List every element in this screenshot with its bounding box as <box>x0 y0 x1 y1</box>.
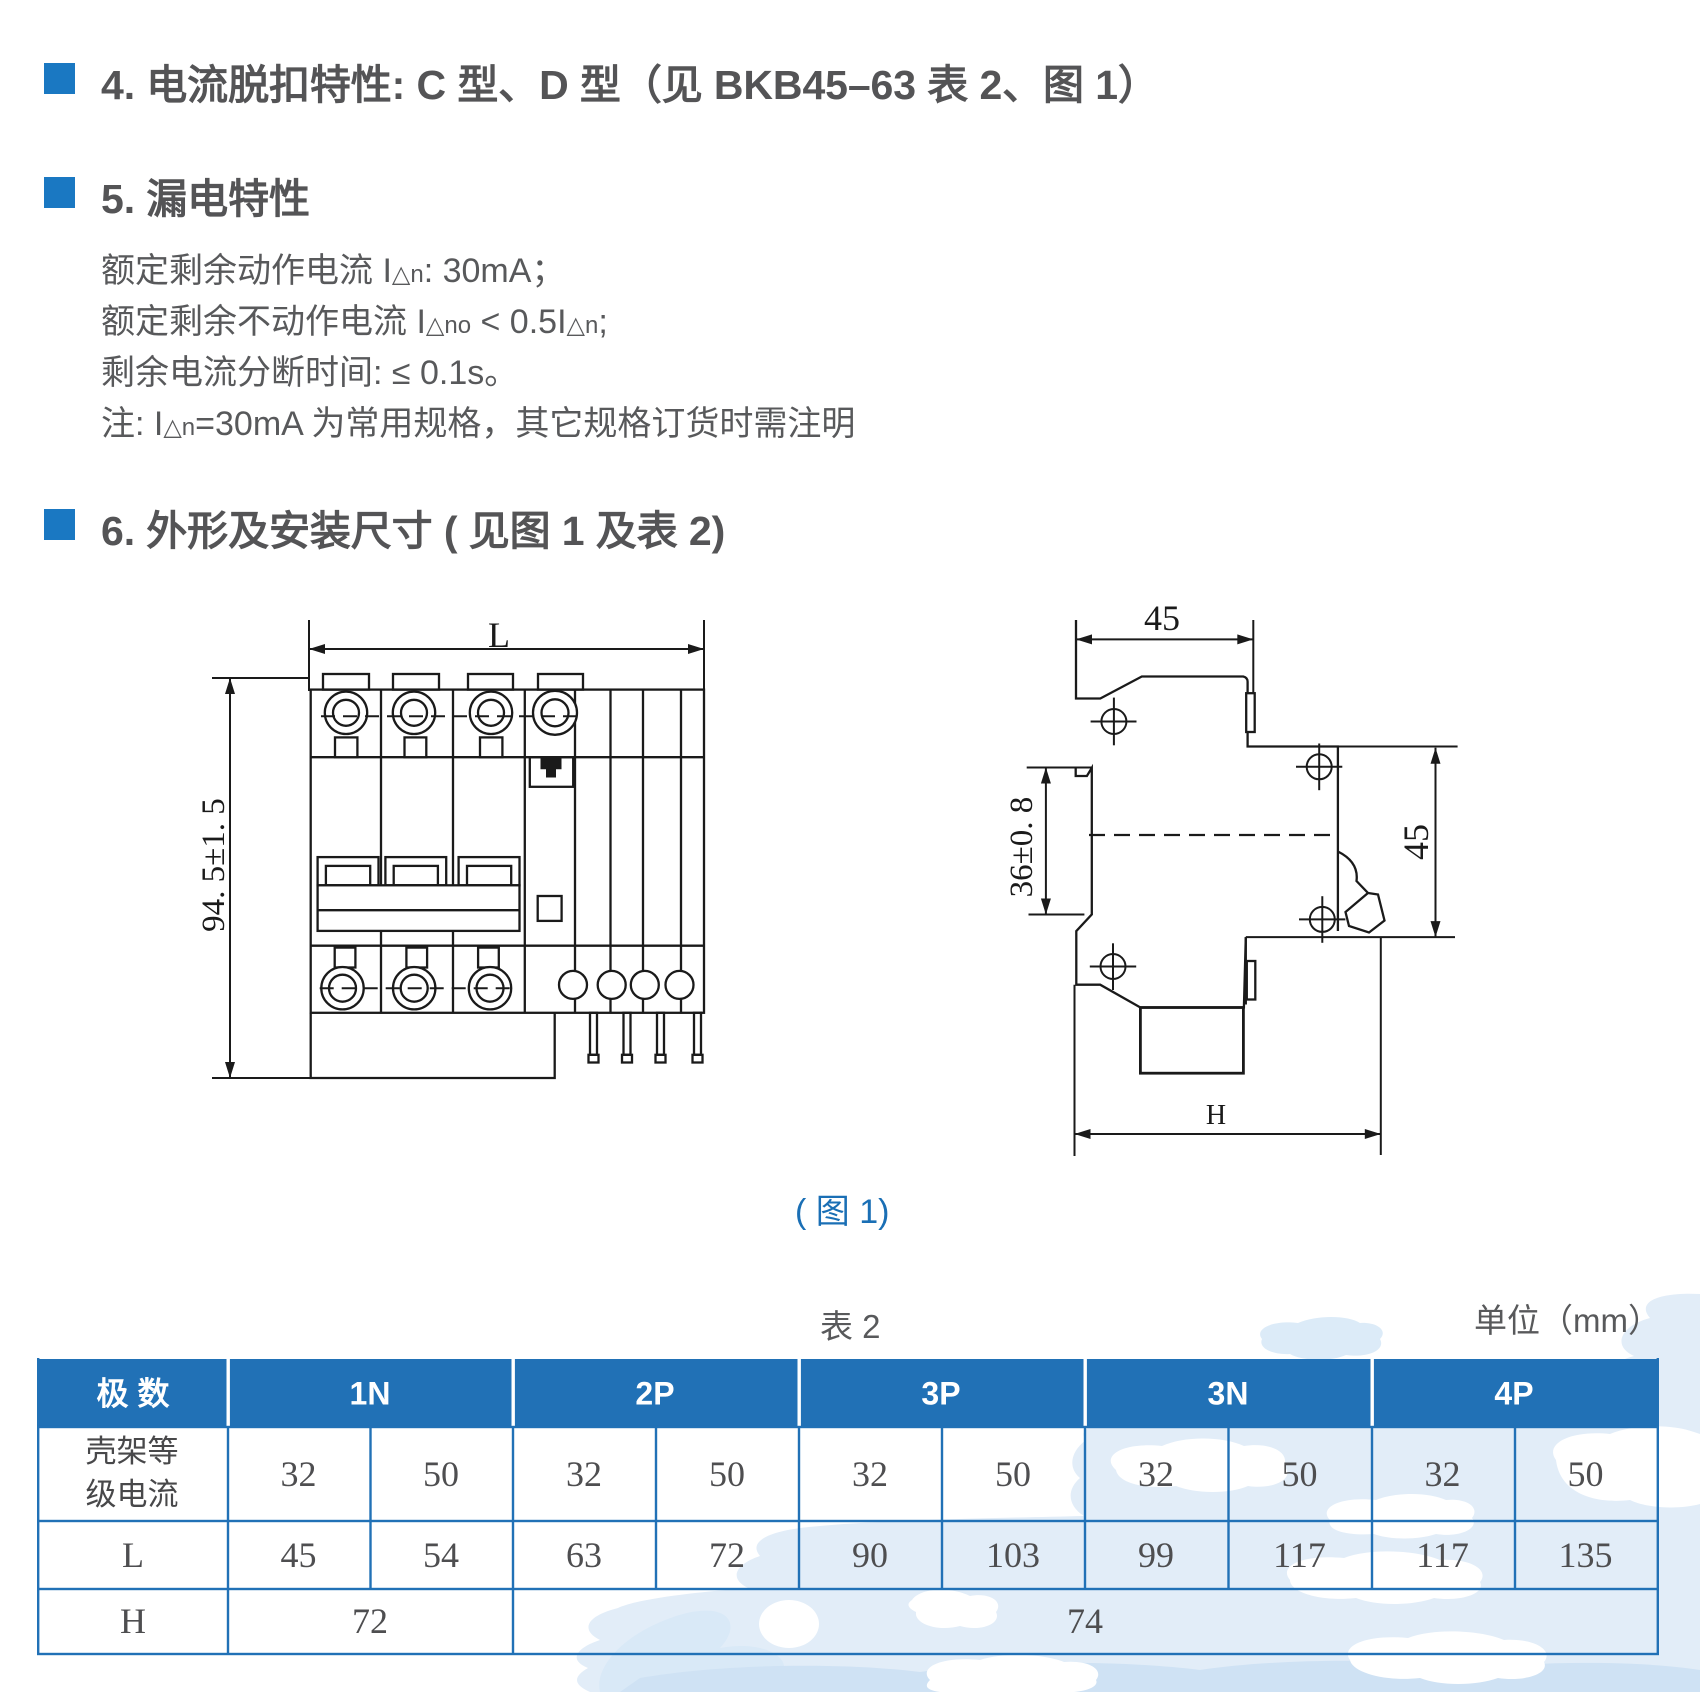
svg-text:H: H <box>120 1601 146 1641</box>
svg-text:50: 50 <box>1568 1454 1604 1494</box>
svg-text:32: 32 <box>281 1454 317 1494</box>
svg-text:2P: 2P <box>635 1376 674 1412</box>
svg-text:50: 50 <box>1282 1454 1318 1494</box>
svg-text:45: 45 <box>281 1535 317 1575</box>
svg-text:74: 74 <box>1067 1601 1103 1641</box>
svg-text:36±0. 8: 36±0. 8 <box>1004 797 1040 898</box>
svg-text:3N: 3N <box>1208 1376 1249 1412</box>
svg-text:117: 117 <box>1273 1535 1326 1575</box>
svg-text:32: 32 <box>1138 1454 1174 1494</box>
svg-text:32: 32 <box>852 1454 888 1494</box>
svg-text:103: 103 <box>986 1535 1040 1575</box>
svg-text:90: 90 <box>852 1535 888 1575</box>
svg-text:72: 72 <box>709 1535 745 1575</box>
svg-text:级电流: 级电流 <box>86 1477 179 1512</box>
svg-text:117: 117 <box>1416 1535 1469 1575</box>
svg-text:94. 5±1. 5: 94. 5±1. 5 <box>196 798 232 932</box>
svg-text:壳架等: 壳架等 <box>86 1434 179 1469</box>
svg-text:45: 45 <box>1396 824 1436 860</box>
svg-text:32: 32 <box>566 1454 602 1494</box>
svg-text:L: L <box>122 1535 144 1575</box>
svg-text:4P: 4P <box>1494 1376 1533 1412</box>
svg-text:1N: 1N <box>350 1376 391 1412</box>
svg-text:54: 54 <box>423 1535 459 1575</box>
svg-text:50: 50 <box>423 1454 459 1494</box>
svg-text:72: 72 <box>352 1601 388 1641</box>
svg-text:50: 50 <box>995 1454 1031 1494</box>
svg-text:L: L <box>488 615 510 655</box>
svg-text:3P: 3P <box>921 1376 960 1412</box>
svg-text:45: 45 <box>1144 598 1180 638</box>
svg-text:99: 99 <box>1138 1535 1174 1575</box>
svg-text:63: 63 <box>566 1535 602 1575</box>
svg-text:135: 135 <box>1559 1535 1613 1575</box>
svg-text:H: H <box>1206 1100 1226 1131</box>
svg-text:32: 32 <box>1425 1454 1461 1494</box>
svg-text:50: 50 <box>709 1454 745 1494</box>
svg-text:极 数: 极 数 <box>97 1376 171 1412</box>
